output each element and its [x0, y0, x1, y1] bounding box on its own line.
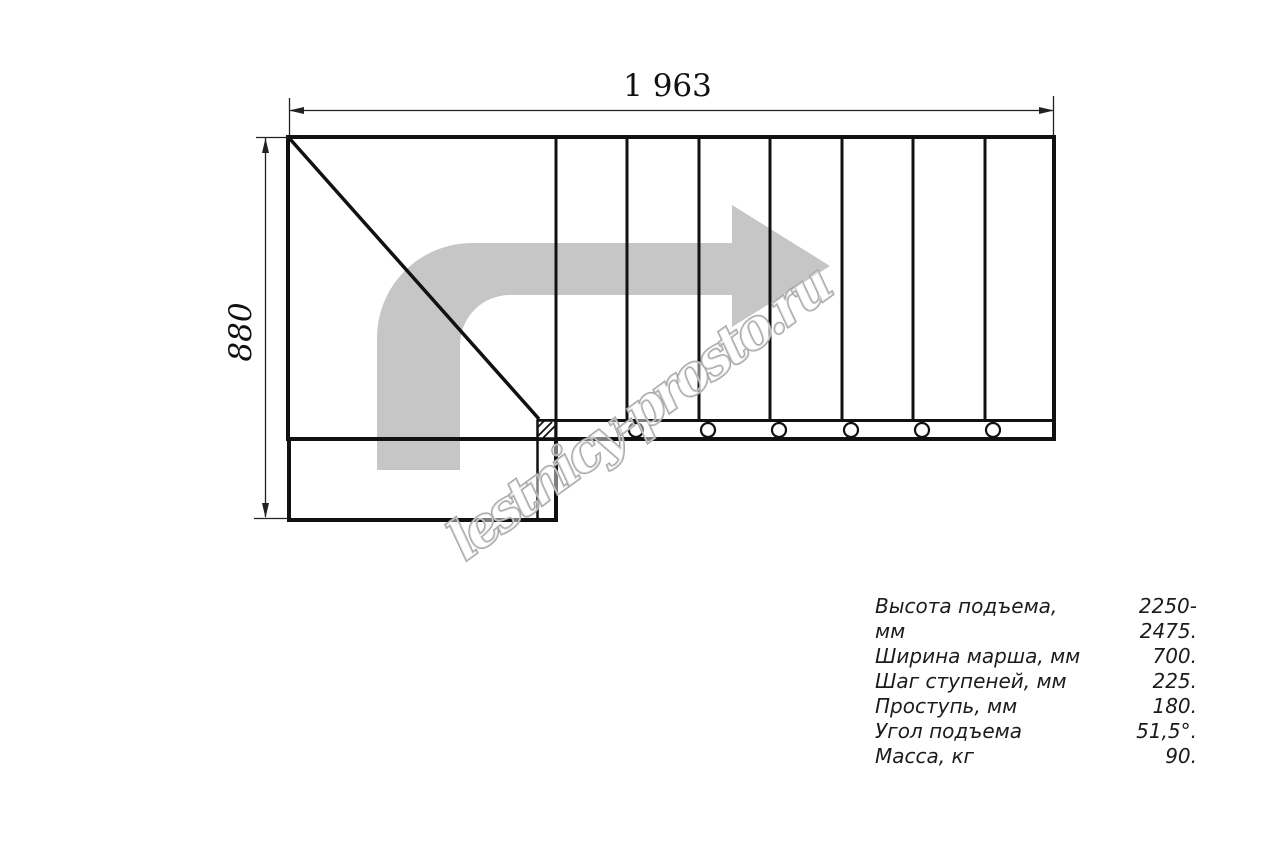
spec-value: 90.	[1165, 744, 1197, 769]
spec-value: 700.	[1152, 644, 1197, 669]
spec-label: Шаг ступеней, мм	[875, 669, 1067, 694]
dimension-arrowhead	[262, 503, 269, 518]
spec-value: 2250-2475.	[1086, 594, 1197, 644]
spec-label: Проступь, мм	[875, 694, 1017, 719]
spec-label: Ширина марша, мм	[875, 644, 1080, 669]
spec-row: Угол подъема 51,5°.	[875, 719, 1197, 744]
dimension-arrowhead	[1039, 107, 1054, 114]
baluster-circle	[844, 423, 858, 437]
spec-table: Высота подъема, мм 2250-2475. Ширина мар…	[875, 594, 1197, 769]
baluster-circle	[915, 423, 929, 437]
baluster-circle	[772, 423, 786, 437]
height-dimension-label: 880	[223, 282, 257, 382]
baluster-circle	[986, 423, 1000, 437]
spec-row: Высота подъема, мм 2250-2475.	[875, 594, 1197, 644]
width-dimension-label: 1 963	[595, 68, 740, 104]
spec-label: Масса, кг	[875, 744, 974, 769]
spec-row: Масса, кг 90.	[875, 744, 1197, 769]
stair-drawing-canvas: lestnicy-prosto.ru 1 963 880 Высота подъ…	[0, 0, 1280, 853]
baluster-circles	[629, 423, 1000, 437]
spec-value: 180.	[1152, 694, 1197, 719]
dimension-arrowhead	[262, 138, 269, 153]
spec-value: 225.	[1152, 669, 1197, 694]
baluster-circle	[701, 423, 715, 437]
spec-row: Шаг ступеней, мм 225.	[875, 669, 1197, 694]
spec-label: Угол подъема	[875, 719, 1022, 744]
spec-value: 51,5°.	[1136, 719, 1197, 744]
watermark-text: lestnicy-prosto.ru	[434, 250, 844, 573]
height-dimension	[254, 138, 288, 519]
spec-row: Проступь, мм 180.	[875, 694, 1197, 719]
spec-row: Ширина марша, мм 700.	[875, 644, 1197, 669]
spec-label: Высота подъема, мм	[875, 594, 1086, 644]
dimension-arrowhead	[289, 107, 304, 114]
